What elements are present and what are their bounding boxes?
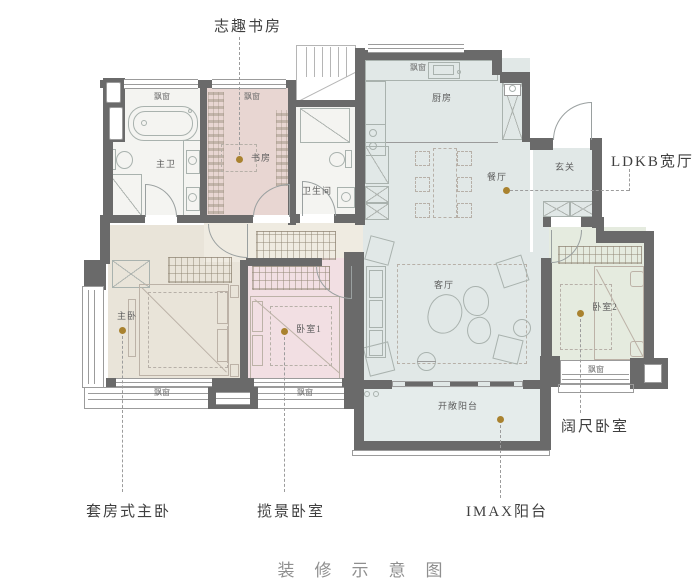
bay-window-line — [94, 290, 95, 384]
door-opening — [551, 217, 581, 227]
leader-line — [122, 336, 123, 492]
kitchen-sink-basin — [433, 65, 454, 75]
dining-chair — [415, 177, 430, 192]
vent-window — [109, 107, 123, 140]
window — [116, 378, 212, 387]
room-label-dining: 餐厅 — [483, 172, 511, 182]
bay-window-label: 飘窗 — [406, 63, 430, 73]
sofa-cushion — [369, 300, 383, 328]
callout-dot-dining — [503, 187, 510, 194]
window — [254, 378, 342, 387]
window — [368, 44, 464, 53]
dining-chair — [415, 203, 430, 218]
faucet-icon — [457, 70, 461, 74]
room-label-balcony: 开敞阳台 — [434, 401, 482, 411]
callout-imax-balcony: IMAX阳台 — [466, 500, 548, 521]
shoe-cabinet — [543, 201, 570, 217]
bay-window-line — [88, 290, 89, 384]
leader-line — [500, 425, 501, 498]
room-label-bedroom2: 卧室2 — [588, 302, 622, 312]
stone-table — [463, 286, 489, 316]
sideboard — [365, 203, 389, 220]
callout-dot-bedroom2 — [577, 310, 584, 317]
callout-dot-balcony — [497, 416, 504, 423]
drain-icon — [364, 391, 370, 397]
pouf — [513, 319, 531, 337]
room-label-living: 客厅 — [430, 280, 458, 290]
wall — [240, 260, 248, 386]
hydrant-icon — [509, 85, 516, 92]
bench — [128, 299, 136, 357]
floor-balcony — [364, 388, 540, 444]
wall — [100, 221, 110, 264]
sink-basin — [188, 156, 197, 165]
wall — [523, 380, 541, 389]
window — [644, 364, 662, 383]
sliding-door-panel — [405, 382, 433, 386]
pillow — [217, 291, 228, 324]
vent-window — [106, 82, 121, 103]
bay-window-label: 飘窗 — [150, 388, 174, 398]
wall — [200, 86, 207, 217]
callout-dot-study — [236, 156, 243, 163]
bay-window-label: 飘窗 — [293, 388, 317, 398]
counter-edge — [386, 142, 498, 143]
callout-ldk: LDKB宽厅 — [611, 150, 694, 171]
callout-master-suite: 套房式主卧 — [86, 500, 171, 521]
room-label-bathroom: 卫生间 — [299, 186, 335, 196]
callout-dot-master — [119, 327, 126, 334]
wall — [344, 380, 364, 409]
nightstand — [230, 364, 239, 377]
page-title: 装修示意图 — [0, 556, 700, 581]
wall — [644, 240, 654, 363]
burner-icon — [369, 129, 377, 137]
pillow — [217, 329, 228, 362]
room-label-master-bedroom: 主卧 — [112, 311, 142, 321]
dining-table — [433, 148, 457, 218]
bed — [250, 296, 340, 380]
wall — [364, 380, 392, 389]
bay-window-strip — [82, 286, 104, 388]
corridor-wardrobe — [256, 231, 336, 260]
pillow — [252, 335, 263, 366]
toilet-tank — [345, 150, 352, 168]
wall — [540, 356, 560, 387]
stair-tread — [330, 47, 331, 77]
shower-area — [300, 108, 350, 143]
wall — [541, 258, 552, 363]
bay-window-label: 飘窗 — [150, 92, 174, 102]
stair-tread — [346, 47, 347, 77]
balcony-outline — [352, 450, 550, 456]
callout-wide-bedroom: 阔尺卧室 — [561, 415, 629, 436]
room-label-bedroom1: 卧室1 — [292, 324, 326, 334]
callout-dot-bedroom1 — [281, 328, 288, 335]
wardrobe — [168, 257, 232, 283]
bay-window-line — [562, 379, 629, 380]
sink-basin — [188, 193, 197, 202]
wall — [354, 441, 548, 450]
bay-window-label: 飘窗 — [584, 365, 608, 375]
wall — [500, 72, 530, 83]
wall — [246, 258, 322, 266]
dining-chair — [457, 151, 472, 166]
dining-chair — [457, 203, 472, 218]
leader-line — [284, 337, 285, 492]
nightstand — [230, 285, 239, 298]
bay-window-label: 飘窗 — [240, 92, 264, 102]
sofa-cushion — [369, 270, 383, 298]
room-label-study: 书房 — [247, 153, 275, 163]
coffee-table-cross — [417, 361, 436, 362]
sliding-door-panel — [490, 382, 514, 386]
bay-window-outline — [558, 384, 634, 393]
room-label-kitchen: 厨房 — [428, 93, 456, 103]
room-label-foyer: 玄关 — [550, 162, 580, 172]
tall-cabinet — [365, 146, 389, 184]
wall — [522, 83, 530, 142]
leader-line — [580, 319, 581, 413]
nightstand — [630, 271, 644, 287]
leader-line — [510, 190, 629, 191]
window — [216, 392, 250, 405]
wall — [355, 48, 365, 225]
leader-line — [629, 169, 630, 191]
callout-scenic-bedroom: 揽景卧室 — [257, 500, 325, 521]
wall — [103, 140, 113, 222]
sideboard — [365, 186, 389, 203]
room-label-master-bath: 主卫 — [148, 159, 184, 169]
stair-tread — [314, 47, 315, 77]
faucet-icon — [188, 109, 192, 113]
leader-line — [239, 37, 240, 155]
toilet-bowl — [329, 152, 345, 167]
callout-study: 志趣书房 — [214, 15, 282, 36]
wall — [530, 138, 553, 150]
stair-tread — [306, 47, 307, 77]
shower-stall — [109, 174, 142, 216]
sliding-door-panel — [450, 382, 478, 386]
stair-tread — [338, 47, 339, 77]
dining-chair — [415, 151, 430, 166]
bathtub-drain — [141, 120, 147, 126]
wall — [296, 100, 357, 107]
window — [212, 79, 286, 89]
door-arc-entry — [553, 102, 592, 140]
dining-chair — [457, 177, 472, 192]
stair-tread — [322, 47, 323, 77]
window — [124, 79, 198, 89]
floor-plan: 主卫 书房 卫生间 厨房 餐厅 玄关 客厅 主卧 卧室1 卧室2 开敞阳台 飘窗… — [0, 0, 700, 587]
drain-icon — [373, 391, 379, 397]
toilet-bowl — [116, 151, 133, 169]
sink-basin — [341, 192, 351, 202]
